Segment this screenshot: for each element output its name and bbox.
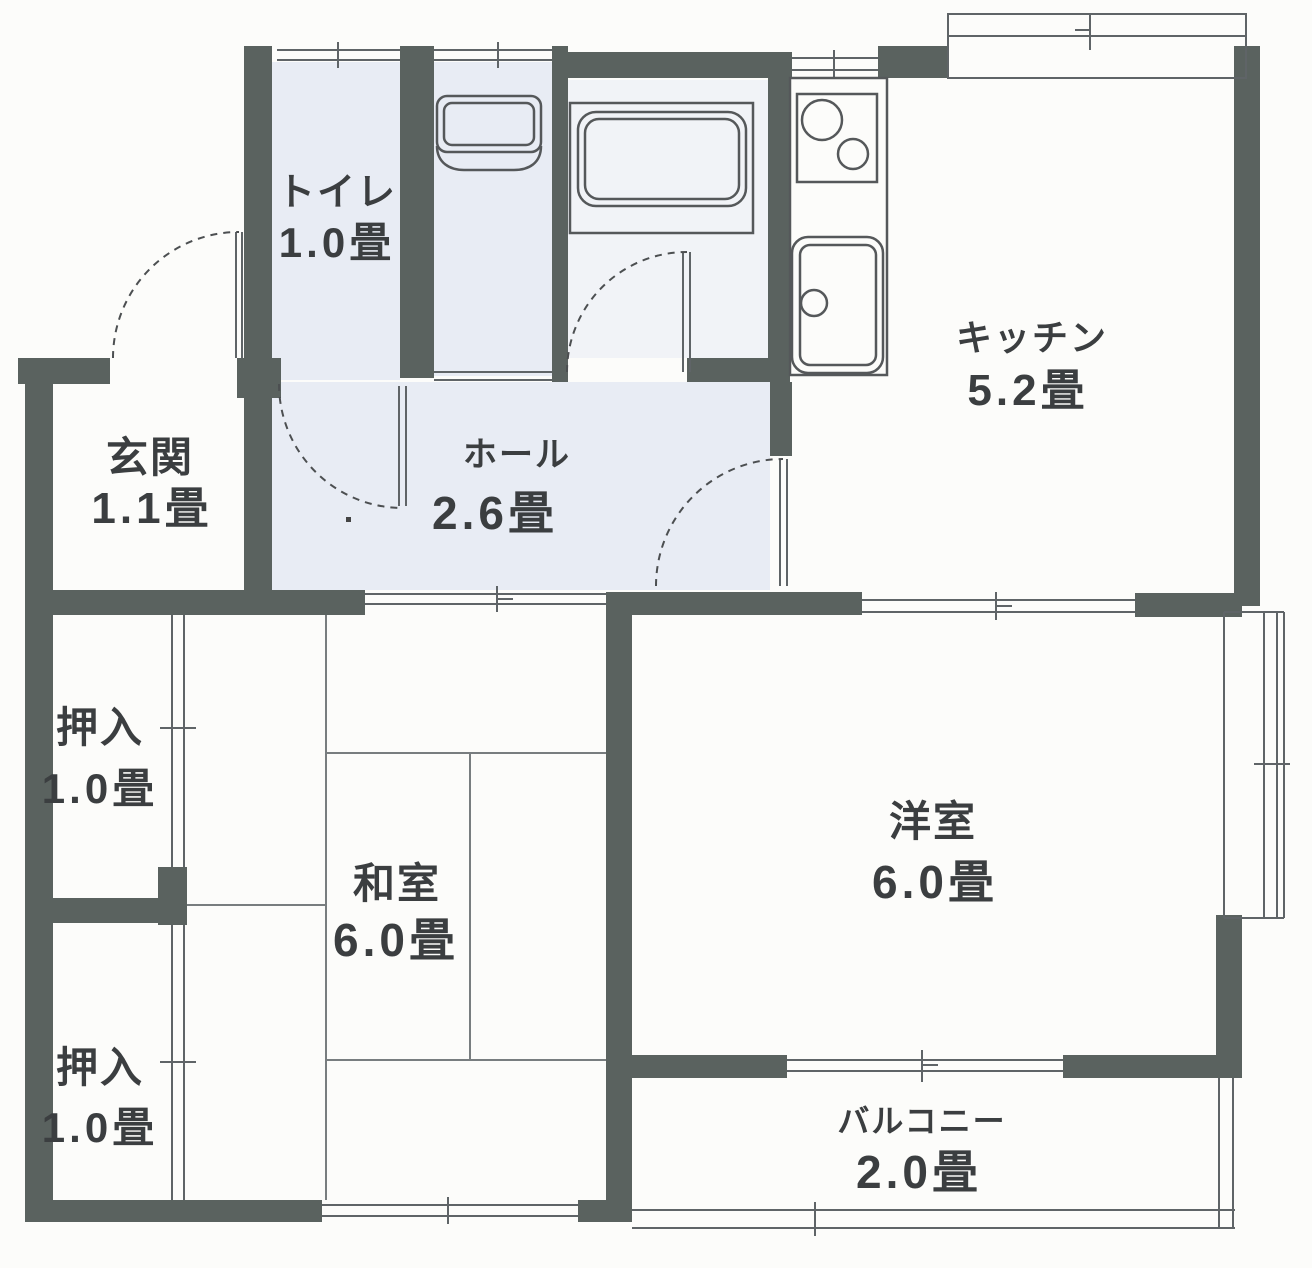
- tatami-lines-icon: [187, 615, 606, 1200]
- hall-area: [269, 382, 770, 590]
- kitchen-door-leaf: [780, 459, 787, 586]
- kitchen-label: キッチン: [956, 320, 1108, 356]
- closet-lower-label: 押入: [56, 1047, 144, 1089]
- closet-lower-size: 1.0畳: [42, 1107, 158, 1149]
- wall-room-divider: [606, 592, 632, 1222]
- closet-upper-size: 1.0畳: [42, 768, 158, 810]
- wall-balcony-top-left: [632, 1055, 787, 1078]
- floor-plan: トイレ 1.0畳 玄関 1.1畳 ホール 2.6畳 キッチン 5.2畳 押入 1…: [0, 0, 1312, 1268]
- wall-kitchen-right: [1234, 46, 1260, 606]
- entrance-size: 1.1畳: [91, 487, 212, 531]
- toilet-size: 1.0畳: [279, 222, 395, 264]
- wall-western-right: [1216, 915, 1242, 1078]
- balcony-label: バルコニー: [837, 1105, 1006, 1137]
- wall-closet-stub: [158, 867, 187, 925]
- wall-balcony-top-right: [1063, 1055, 1240, 1078]
- wall-top-kitchen-left: [878, 46, 948, 78]
- wall-toilet-washroom: [400, 46, 434, 378]
- wall-entrance-bottom: [25, 590, 365, 615]
- wall-entrance-top: [18, 358, 110, 384]
- washroom-area: [434, 62, 552, 376]
- japanese-room-size: 6.0畳: [333, 917, 459, 963]
- wall-divider-foot: [578, 1200, 632, 1222]
- kitchen-window-icon: [792, 50, 878, 78]
- closet-upper-label: 押入: [56, 707, 144, 749]
- wall-toilet-left: [244, 46, 272, 615]
- wall-washroom-bathroom: [552, 46, 568, 382]
- western-room-size: 6.0畳: [872, 859, 998, 905]
- kitchen-western-sliding-door-icon: [862, 592, 1135, 620]
- wall-kitchen-bottom: [1135, 593, 1242, 617]
- balcony-size: 2.0畳: [856, 1149, 982, 1195]
- wall-top-bathroom: [552, 52, 792, 78]
- balcony-window-icon: [787, 1050, 1063, 1082]
- hall-size: 2.6畳: [432, 490, 558, 536]
- western-bay-window-icon: [1224, 612, 1290, 918]
- japanese-room-label: 和室: [353, 863, 441, 905]
- entrance-door-leaf: [236, 232, 242, 358]
- bathroom-area: [568, 80, 768, 358]
- western-room-label: 洋室: [889, 801, 977, 843]
- wall-washitsu-top: [606, 592, 862, 615]
- wall-bottom-left: [25, 1200, 322, 1222]
- kitchen-size: 5.2畳: [967, 369, 1088, 413]
- wall-kitchen-door-stub: [770, 382, 792, 456]
- hall-label: ホール: [463, 438, 571, 472]
- sink-icon: [792, 237, 883, 373]
- stove-icon: [797, 94, 877, 182]
- washitsu-window-icon: [322, 1197, 578, 1224]
- kitchen-counter-icon: [790, 78, 887, 375]
- entrance-label: 玄関: [106, 437, 194, 479]
- toilet-label: トイレ: [277, 174, 397, 212]
- wall-bathroom-kitchen: [768, 52, 790, 382]
- wall-bathroom-bottom-b: [687, 358, 790, 382]
- kitchen-bay-window-icon: [948, 14, 1246, 78]
- entrance-door-arc: [113, 232, 239, 358]
- wall-bathroom-bottom-a: [552, 358, 565, 382]
